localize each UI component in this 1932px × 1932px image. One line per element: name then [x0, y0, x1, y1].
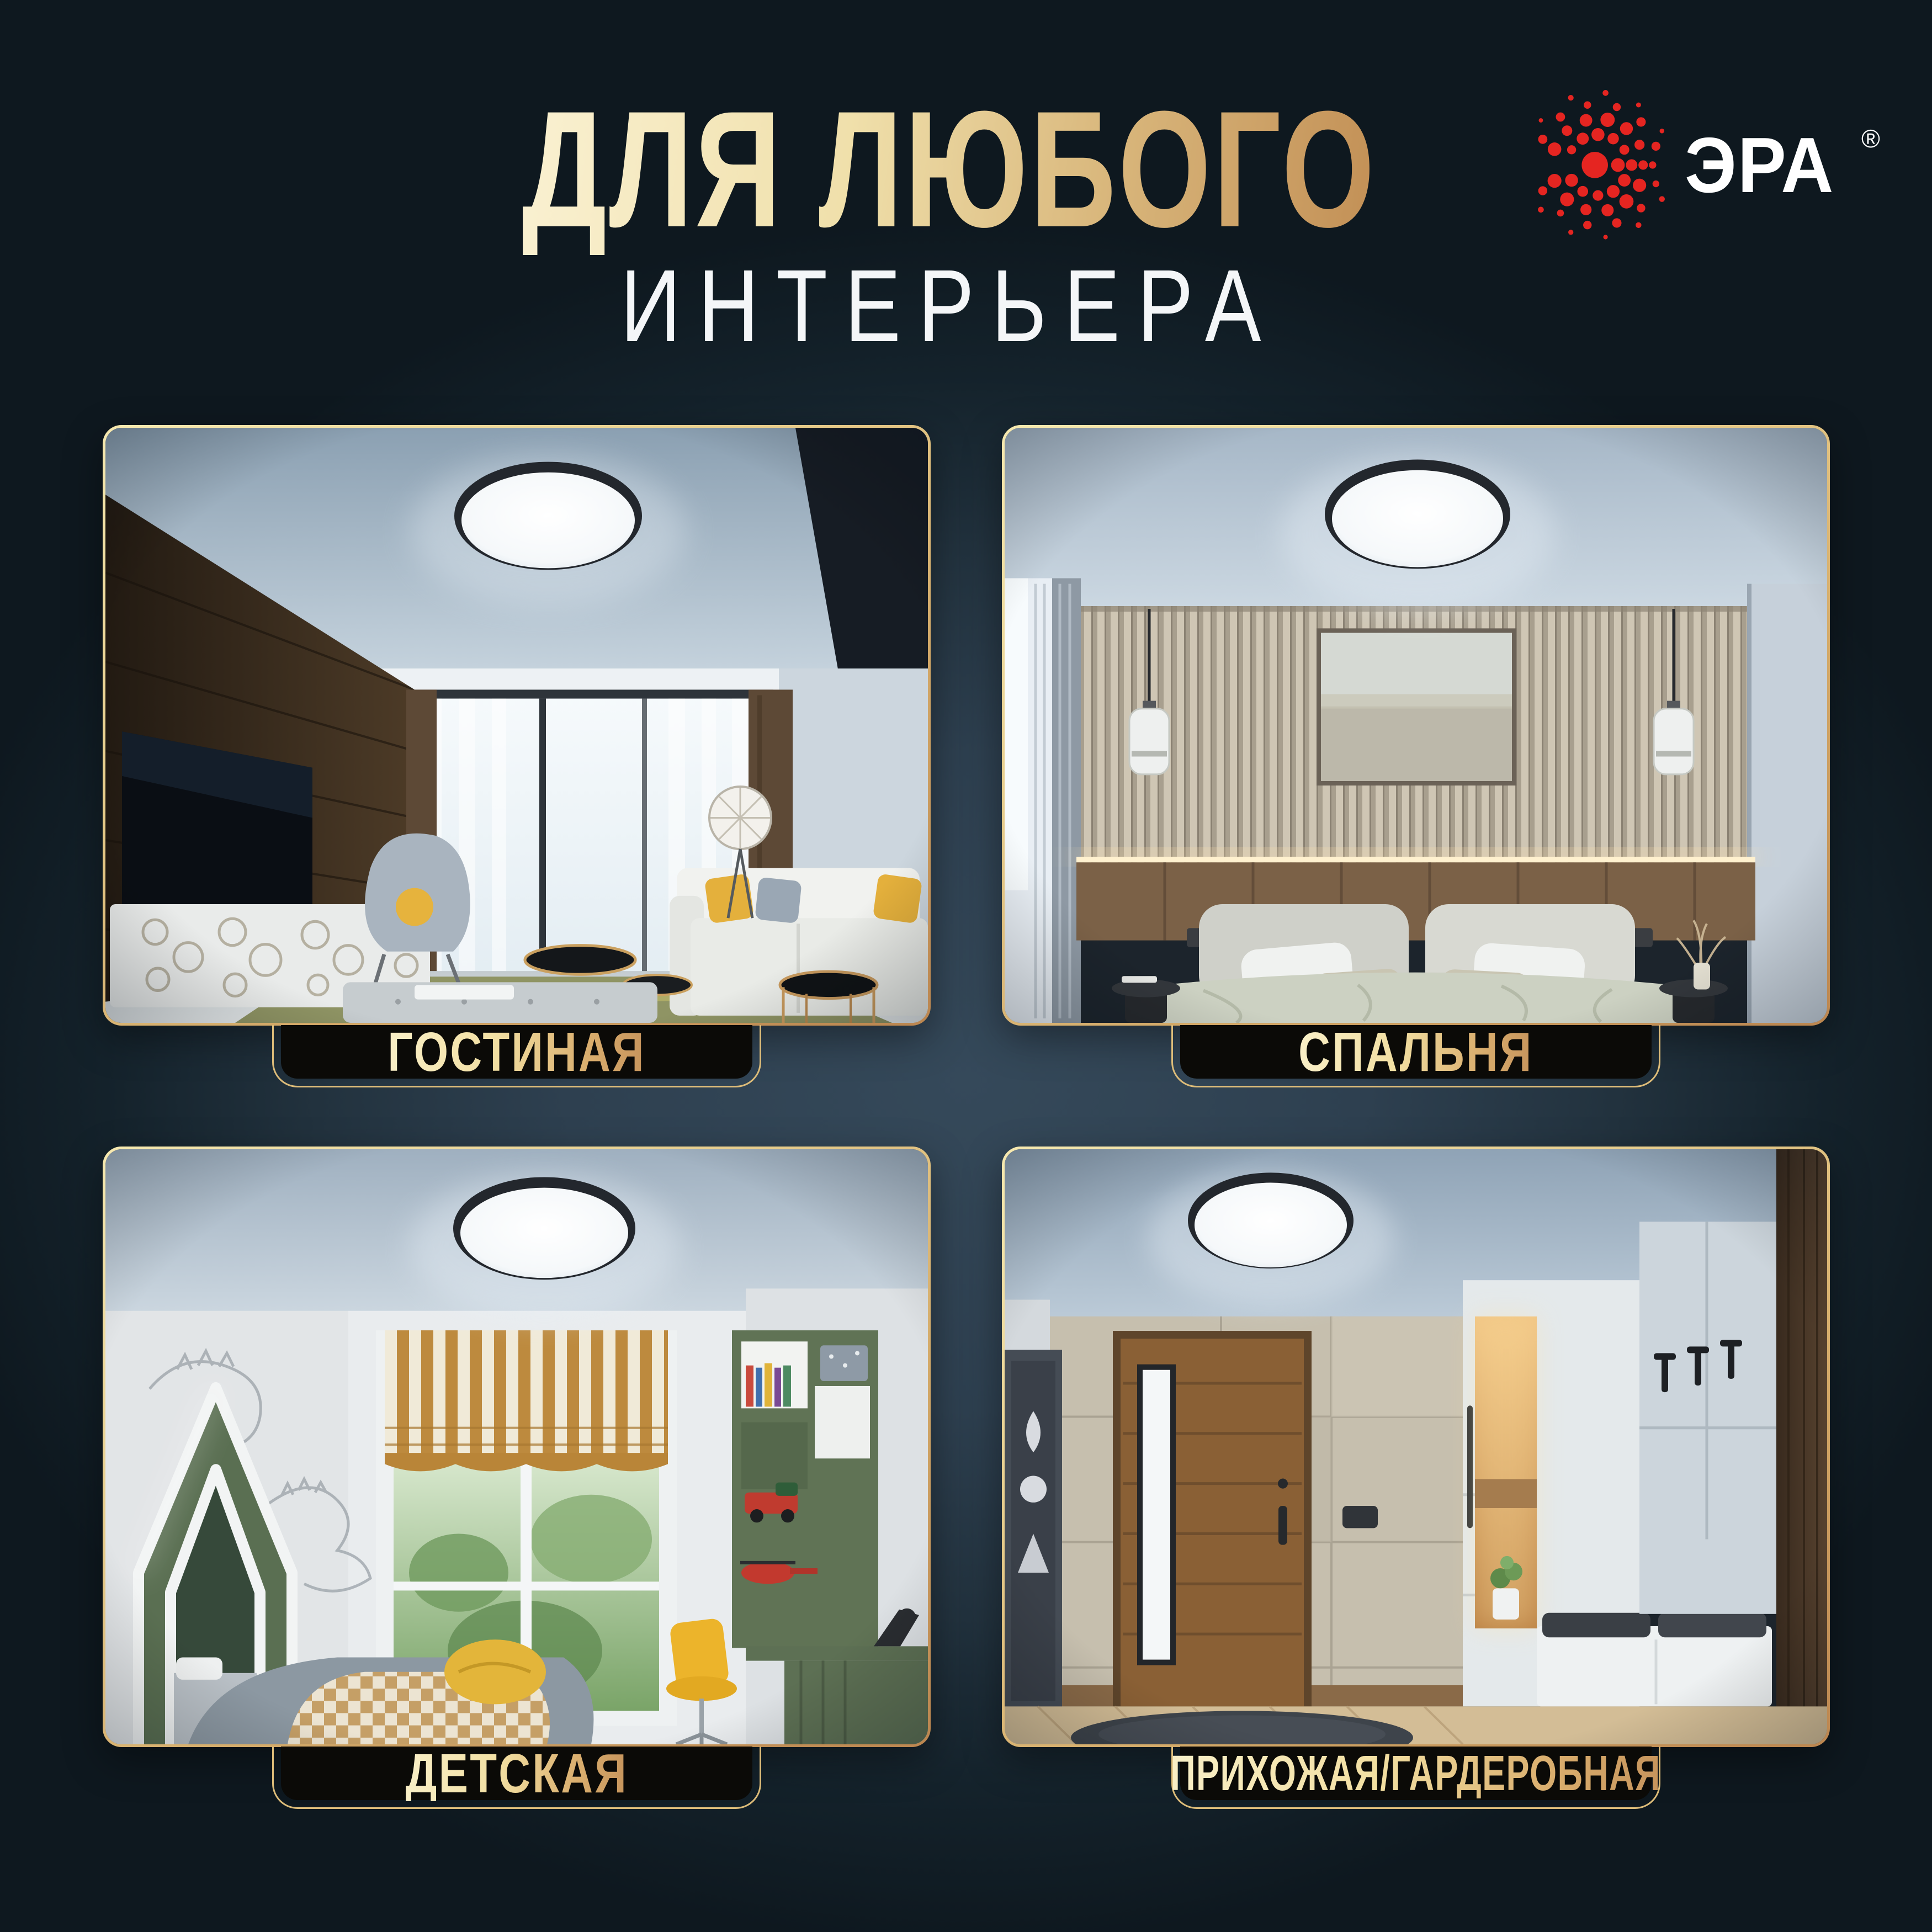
promo-page: ДЛЯ ЛЮБОГО ИНТЕРЬЕРА ЭРА ®	[0, 0, 1932, 1932]
era-logo: ЭРА ®	[1537, 84, 1923, 250]
era-sunburst-icon	[1537, 88, 1678, 241]
photo-frame	[1002, 1147, 1830, 1747]
hallway-photo	[1005, 1149, 1827, 1744]
living-room-photo	[105, 428, 928, 1023]
room-label: СПАЛЬНЯ	[1298, 1025, 1533, 1080]
title-line-2: ИНТЕРЬЕРА	[620, 247, 1278, 365]
photo-frame	[1002, 425, 1830, 1026]
room-card-living: ГОСТИНАЯ	[103, 425, 931, 1087]
bedroom-photo	[1005, 428, 1827, 1023]
room-label-plate: СПАЛЬНЯ	[1171, 1025, 1660, 1087]
room-label-plate: ГОСТИНАЯ	[272, 1025, 761, 1087]
kids-room-photo	[105, 1149, 928, 1744]
photo-frame	[103, 1147, 931, 1747]
room-card-kids: ДЕТСКАЯ	[103, 1147, 931, 1809]
room-card-hallway: ПРИХОЖАЯ/ГАРДЕРОБНАЯ	[1002, 1147, 1830, 1809]
room-label: ГОСТИНАЯ	[388, 1025, 645, 1080]
registered-trademark-icon: ®	[1861, 124, 1880, 153]
room-card-bedroom: СПАЛЬНЯ	[1002, 425, 1830, 1087]
room-label-plate: ПРИХОЖАЯ/ГАРДЕРОБНАЯ	[1171, 1747, 1660, 1809]
room-label-plate: ДЕТСКАЯ	[272, 1747, 761, 1809]
room-label: ДЕТСКАЯ	[405, 1746, 628, 1801]
photo-frame	[103, 425, 931, 1026]
page-subtitle: ИНТЕРЬЕРА	[0, 247, 1899, 365]
room-label: ПРИХОЖАЯ/ГАРДЕРОБНАЯ	[1171, 1749, 1661, 1798]
era-brand-text: ЭРА	[1685, 120, 1834, 211]
title-line-1: ДЛЯ ЛЮБОГО	[522, 83, 1377, 255]
